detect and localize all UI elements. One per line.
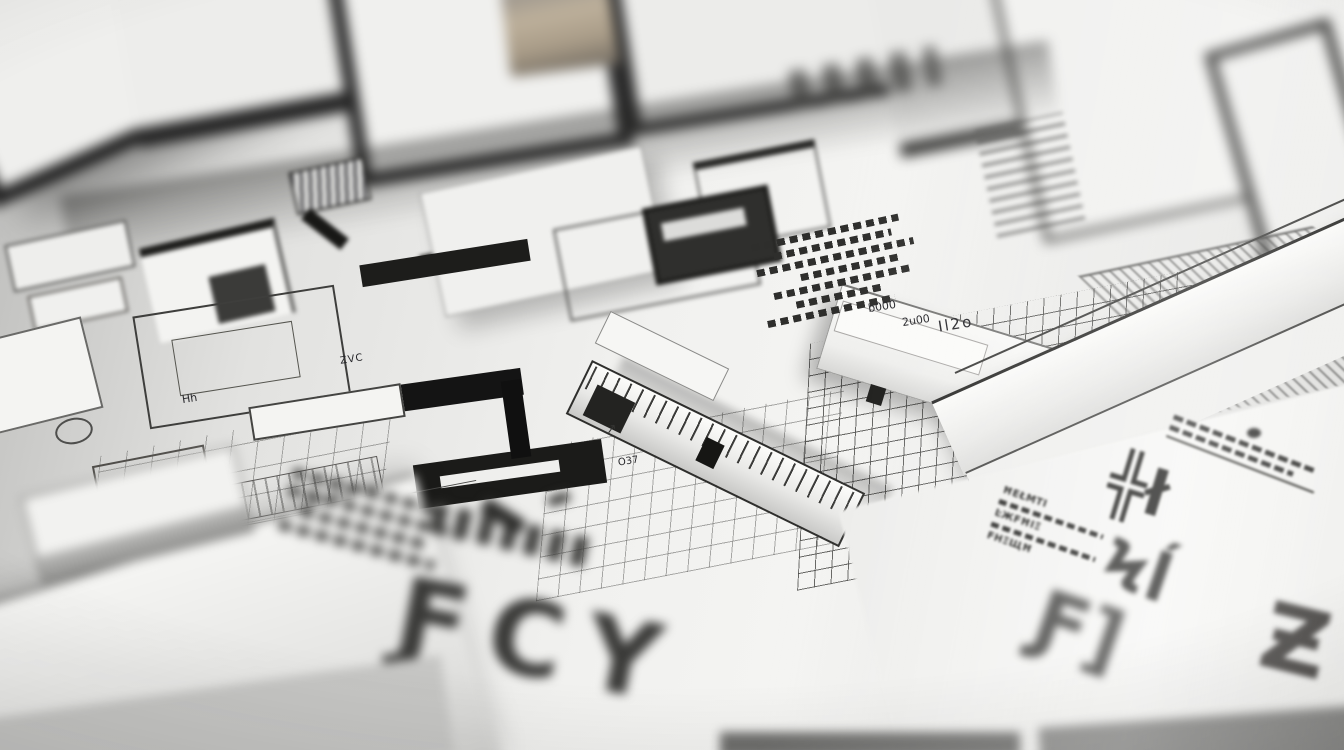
pseudo-glyph-large-3: Ƒ] [1022,574,1135,688]
stamp-row-mark [300,507,428,549]
vignette-overlay [0,0,1344,750]
wall-segment [695,437,724,469]
pseudo-glyph-large-2: Ϟĺ [1091,523,1181,618]
wall-ledge [0,316,104,437]
blurred-wall-frame [1204,18,1344,323]
stamp-row-mark [287,485,463,540]
wall-stub [866,384,887,406]
louvered-wall-assembly [566,360,866,547]
wall-segment [419,240,495,271]
room-outline [171,321,300,396]
beige-model-block [500,0,665,77]
blurred-sheet [984,0,1344,244]
stamp-row: FНΞЩĦ [985,529,1093,577]
dark-wall-face [208,264,275,324]
dimension-label: Il2o [937,312,975,335]
dimension-label: b000 [867,298,897,315]
extruded-floor-slab [816,283,1160,465]
blurred-annotation-marks [429,502,592,567]
floor-slab-edge [931,174,1344,477]
annotation-dash-rows [751,201,975,334]
wall-opening [661,208,747,242]
blurred-wall-frame [324,0,634,188]
stamp-row-mark [998,499,1104,540]
blurred-annotation-marks [788,45,943,110]
midground-layer [0,0,1344,750]
window-sill [248,383,405,441]
near-sheet-layer: ĦEŁMTI ĿЖFĦIΞ FНΞЩĦ ╬ł Ϟĺ Ƒ] Ƶ [0,0,1344,750]
floor-slab [419,146,667,317]
thick-black-wall [413,439,607,509]
wall-stub [942,410,962,430]
wall-segment [301,208,349,250]
text-row-mark [1173,414,1315,472]
foreground-paper-edge [0,655,455,750]
furniture-outline-table [27,276,128,331]
table-surface-strip [720,732,1020,750]
stamp-text-block: ĦEŁMTI ĿЖFĦIΞ FНΞЩĦ [985,484,1109,577]
debris-mark [479,497,526,535]
slab-cap [834,300,989,375]
annotation-row [800,253,899,281]
foreground-ledge [20,445,254,584]
blurred-wall-block [863,0,1167,158]
room-outline [553,192,761,321]
grid-floor [536,389,844,602]
wall-segment [490,204,520,270]
room-outline [693,139,832,251]
dimension-label: 2u00 [901,312,931,329]
drawing-sheet [838,361,1344,750]
annotation-row-marks [975,112,1086,238]
annotation-row [751,214,899,252]
foreground-blur-layer: ƑϹΥ [0,0,1344,750]
annotation-row [773,228,892,260]
stamp-row-mark [278,520,435,570]
foreground-slab [0,473,502,750]
ledge-side-face [37,505,252,582]
stair-hatch-band [1078,226,1344,412]
louver-stripes [585,366,858,517]
stamp-row: ĦEŁMTI [1001,484,1109,532]
text-row-mark [1169,425,1294,477]
cast-shadow-band [60,40,1060,275]
annotation-row [796,283,885,309]
room-outline [132,285,351,430]
furniture-outline-oval [53,414,96,447]
blurred-stamp-rows [276,468,469,584]
wall-end-cap [501,379,532,459]
thick-black-wall [317,368,524,423]
blurred-wall-block [603,0,951,136]
drawing-line [1153,303,1344,358]
table-surface-strip [1038,704,1344,750]
light-sheen-overlay [0,0,1344,750]
thick-black-wall [359,239,530,287]
stamp-row-mark [990,522,1096,563]
dimension-label: Hh [181,391,198,406]
stamp-row-mark [292,468,439,516]
dark-room-block [642,185,783,286]
grid-floor [85,399,395,581]
wall-segment [583,385,636,434]
pseudo-glyph-large-4: Ƶ [1250,582,1341,702]
drawing-line [955,181,1344,374]
wall-cap [595,311,729,401]
ink-blob-mark [1247,428,1261,438]
dimension-label: ZVC [339,352,364,367]
wall-opening [440,460,561,489]
floor-slab-edge [965,297,1344,516]
underline-rule [1166,435,1314,493]
furniture-outline-striped [228,456,384,522]
cast-shadow [606,356,893,523]
furniture-outline [92,445,212,510]
debris-mark [547,491,571,507]
blurred-wall-block [105,0,477,148]
hatched-floor-area [288,157,371,216]
pseudo-glyph-foreground: ƑϹΥ [386,554,693,729]
blueprint-photo-canvas: b000 2u00 Il2o ZVC Hh O37 ↗ ĦEŁMTI ĿЖFĦI… [0,0,1344,750]
wall-stub [1020,434,1038,453]
background-blur-layer [0,0,1344,750]
north-arrow-mark: ↗ [605,421,618,438]
furniture-outline-bed [4,220,135,293]
pseudo-paragraph [1166,414,1322,493]
extruded-room-block [139,218,296,344]
annotation-row [756,237,914,277]
sharp-focus-layer: b000 2u00 Il2o ZVC Hh O37 ↗ [0,0,1344,750]
dimension-line [64,480,476,561]
drawing-line [1143,333,1344,393]
blurred-wall-block [0,0,297,209]
annotation-row [767,294,896,328]
pseudo-glyph-large-1: ╬ł [1099,445,1178,532]
stamp-row: ĿЖFĦIΞ [993,506,1101,554]
dimension-label: O37 [617,454,639,468]
grid-floor [797,269,1193,590]
annotation-row [773,264,911,300]
